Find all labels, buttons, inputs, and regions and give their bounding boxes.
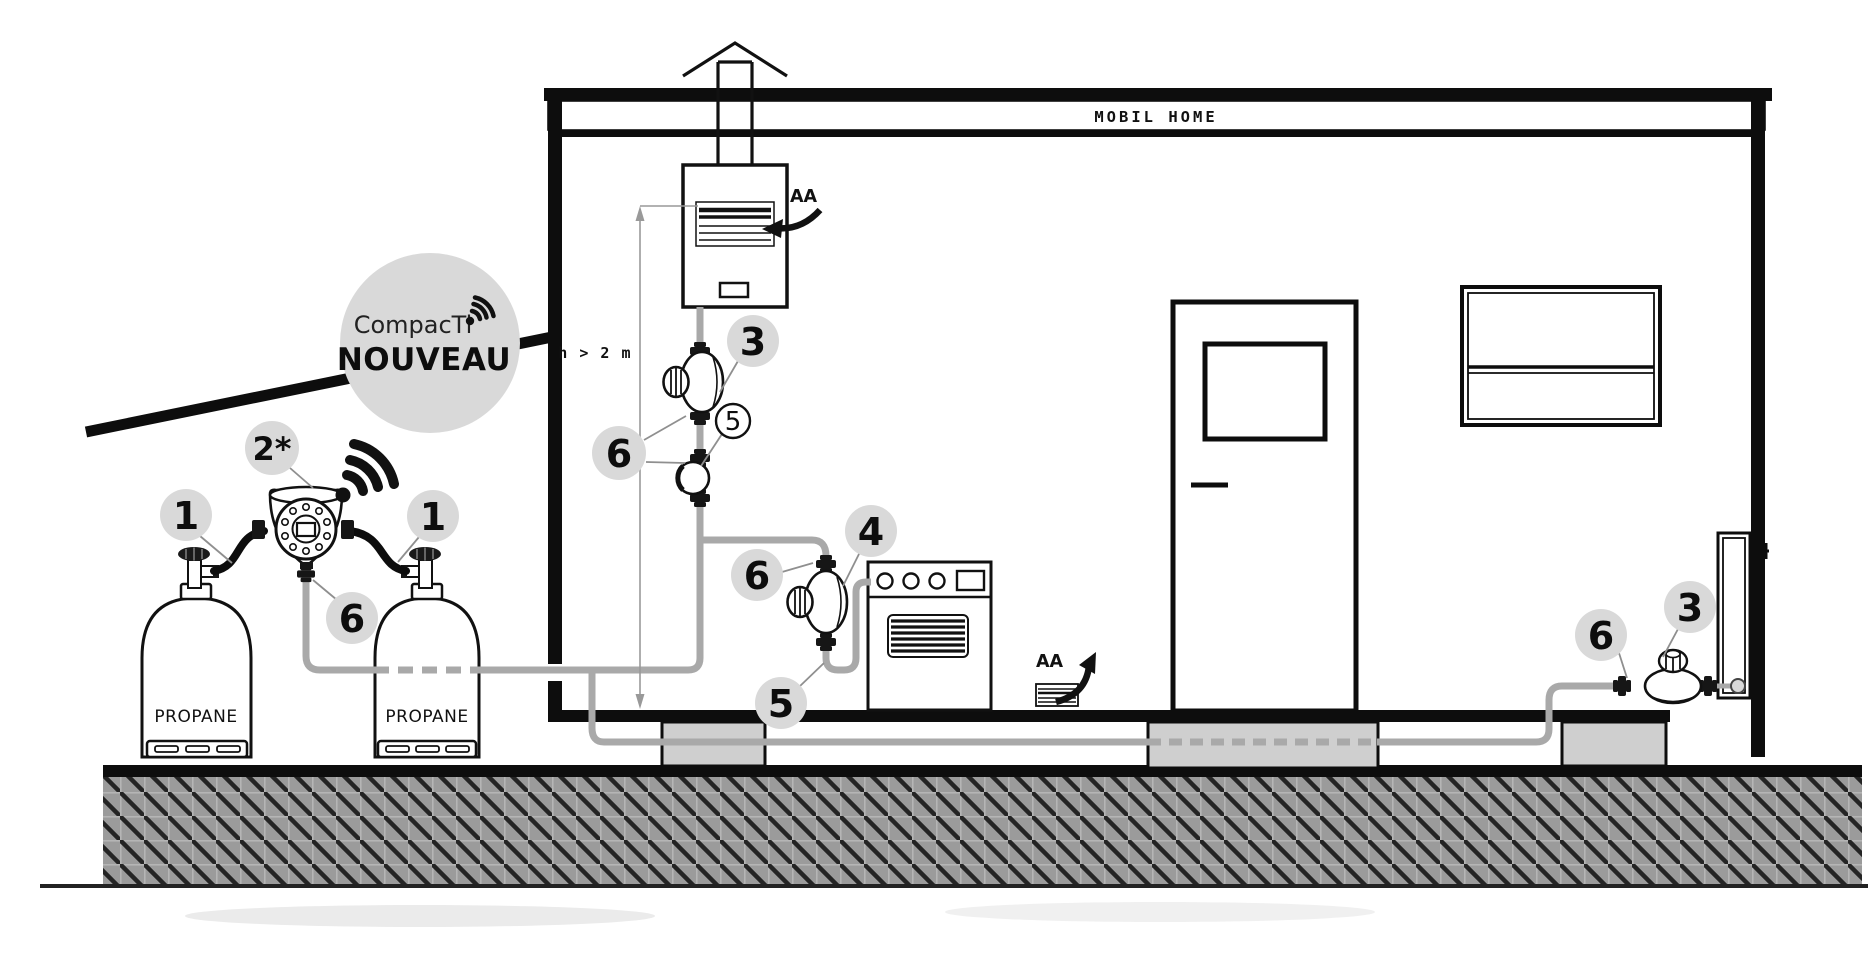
roof-bar (544, 88, 1772, 101)
callout-stove-hose: 5 (755, 677, 807, 729)
svg-text:4: 4 (858, 510, 884, 554)
stove-knob (930, 574, 945, 589)
dimension-label: h > 2 m (558, 344, 632, 362)
radiator-pipe-end (1731, 679, 1745, 693)
riser-shutoff-valve (677, 449, 710, 507)
callout-heater-regulator: 3 (727, 315, 779, 367)
heater-vent-slats (696, 202, 774, 246)
regulator-knob (788, 587, 813, 617)
regulator-knob (664, 367, 689, 397)
new-product-badge: CompacTi NOUVEAU (337, 253, 520, 433)
tank-label-right: PROPANE (385, 707, 468, 727)
ground-baseline (40, 884, 1868, 888)
propane-tank-left: PROPANE (142, 547, 251, 757)
door (1173, 302, 1356, 711)
callout-stove-connection: 4 (845, 505, 897, 557)
callout-inverter-outlet-fitting: 6 (326, 592, 378, 644)
radiator-regulator (1613, 650, 1717, 703)
callout-stove-regulator-fitting: 6 (731, 549, 783, 601)
heater-pilot-window (720, 283, 748, 297)
chimney-cap (683, 43, 787, 76)
foundation-block-right (1562, 722, 1666, 766)
propane-tank-right: PROPANE (375, 547, 479, 757)
stove (868, 562, 991, 710)
tank-label-left: PROPANE (154, 707, 237, 727)
stove-knob (904, 574, 919, 589)
gas-hose-right (350, 531, 406, 571)
stove-display (957, 571, 984, 590)
ground-shadow-left (185, 905, 655, 927)
badge-banner-text: NOUVEAU (337, 342, 511, 378)
wifi-icon-device (336, 444, 395, 503)
dimension-arrow-up (636, 206, 645, 221)
svg-text:6: 6 (1588, 614, 1614, 658)
svg-text:6: 6 (744, 554, 770, 598)
heater-air-label: AA (790, 187, 818, 207)
right-wall (1751, 95, 1765, 757)
callout-heater-shutoff-valve: 5 (716, 404, 750, 438)
svg-text:3: 3 (740, 320, 766, 364)
floor-air-label: AA (1036, 652, 1064, 672)
callout-hose-left: 1 (160, 489, 212, 541)
callout-hose-right: 1 (407, 490, 459, 542)
ground-hatch (103, 777, 1862, 884)
tank-base (378, 741, 476, 757)
stove-knob (878, 574, 893, 589)
badge-brand-text: CompacTi (354, 311, 473, 339)
callout-heater-fittings: 6 (592, 426, 646, 480)
svg-text:1: 1 (420, 495, 446, 539)
dimension-arrow-down (636, 694, 645, 709)
stove-oven-grill (888, 615, 968, 657)
callout-inverter: 2* (245, 421, 299, 475)
svg-text:6: 6 (606, 432, 632, 476)
stove-regulator (788, 555, 848, 651)
floor-line (548, 710, 1670, 722)
left-wall-upper (548, 95, 562, 664)
regulator-knob (1659, 650, 1687, 672)
installation-diagram: CompacTi NOUVEAU MOBIL HOME (0, 0, 1868, 967)
svg-text:6: 6 (339, 597, 365, 641)
door-window (1205, 344, 1325, 439)
left-wall-lower (548, 681, 562, 712)
ground (40, 765, 1868, 927)
svg-text:5: 5 (725, 407, 742, 437)
svg-text:5: 5 (768, 682, 794, 726)
roof-band-bottom-bar (548, 130, 1765, 137)
heater-regulator (664, 342, 724, 425)
wifi-dot (336, 488, 351, 503)
svg-text:2*: 2* (253, 430, 292, 468)
floor-air-vent-callout: AA (1036, 652, 1096, 706)
svg-text:1: 1 (173, 494, 199, 538)
water-heater (683, 165, 787, 307)
inverter-gear-face (276, 499, 336, 559)
window (1462, 287, 1660, 425)
home-name-label: MOBIL HOME (1094, 108, 1217, 126)
callout-radiator-fitting: 6 (1575, 609, 1627, 661)
svg-text:3: 3 (1677, 586, 1703, 630)
ground-shadow-right (945, 902, 1375, 922)
callout-radiator-regulator: 3 (1664, 581, 1716, 633)
tank-base (147, 741, 247, 757)
